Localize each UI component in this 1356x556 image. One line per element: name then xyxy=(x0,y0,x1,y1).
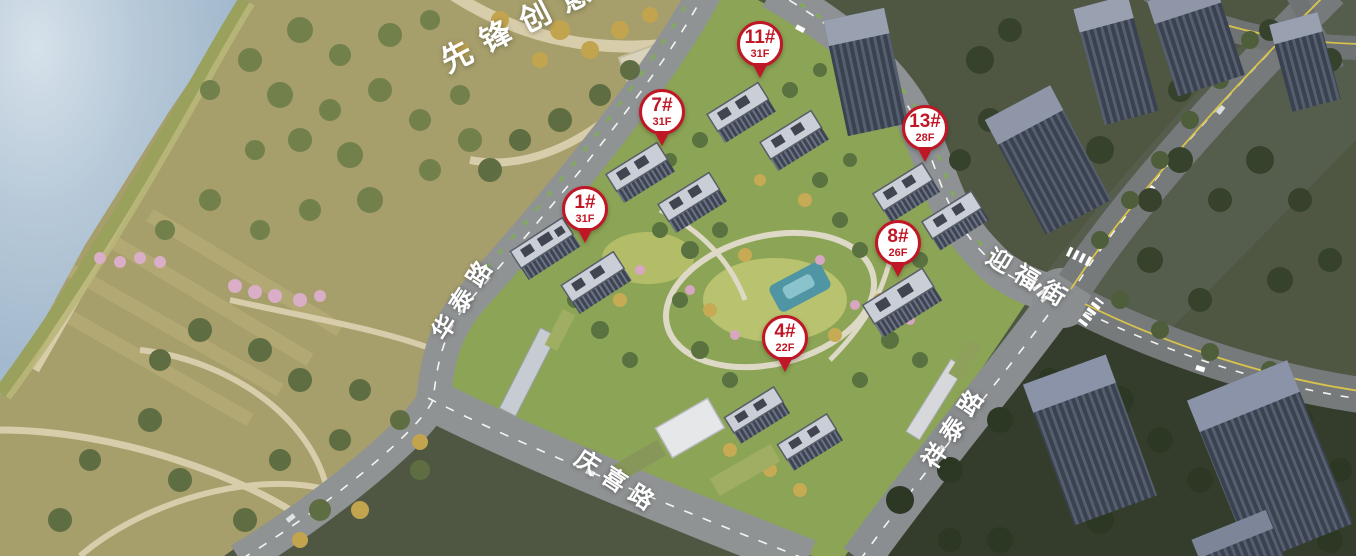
pin-circle: 11# 31F xyxy=(737,21,783,67)
marker-pin-4[interactable]: 4# 22F xyxy=(762,315,808,372)
pin-tail xyxy=(917,147,933,162)
marker-pin-8[interactable]: 8# 26F xyxy=(875,220,921,277)
pin-building-number: 7# xyxy=(651,96,672,115)
pin-circle: 13# 28F xyxy=(902,105,948,151)
marker-pin-7[interactable]: 7# 31F xyxy=(639,89,685,146)
pin-circle: 1# 31F xyxy=(562,186,608,232)
pin-floor-count: 31F xyxy=(751,49,770,60)
pin-floor-count: 26F xyxy=(889,248,908,259)
pin-tail xyxy=(890,262,906,277)
pin-circle: 4# 22F xyxy=(762,315,808,361)
pin-tail xyxy=(752,63,768,78)
pin-circle: 7# 31F xyxy=(639,89,685,135)
pin-building-number: 4# xyxy=(774,322,795,341)
aerial-site-map: 先锋创意 华泰路 庆喜路 祥泰路 迎福街 1# 31F 4# 22F 7# 31… xyxy=(0,0,1356,556)
pin-floor-count: 22F xyxy=(776,343,795,354)
pin-circle: 8# 26F xyxy=(875,220,921,266)
pin-tail xyxy=(577,228,593,243)
pin-floor-count: 31F xyxy=(576,214,595,225)
pin-floor-count: 31F xyxy=(653,117,672,128)
pin-building-number: 13# xyxy=(909,112,941,131)
marker-pin-13[interactable]: 13# 28F xyxy=(902,105,948,162)
marker-pin-11[interactable]: 11# 31F xyxy=(737,21,783,78)
pin-building-number: 11# xyxy=(745,28,776,47)
marker-pin-1[interactable]: 1# 31F xyxy=(562,186,608,243)
pin-building-number: 8# xyxy=(887,227,908,246)
pin-floor-count: 28F xyxy=(916,133,935,144)
pin-tail xyxy=(654,131,670,146)
pin-building-number: 1# xyxy=(574,193,595,212)
map-artwork xyxy=(0,0,1356,556)
pin-tail xyxy=(777,357,793,372)
